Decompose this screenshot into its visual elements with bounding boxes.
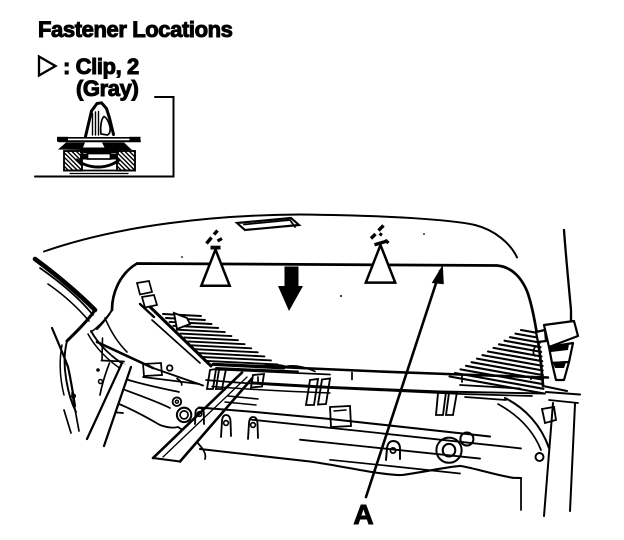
svg-text:Fastener Locations: Fastener Locations [38, 17, 233, 42]
svg-text:(Gray): (Gray) [76, 76, 138, 101]
svg-text:A: A [353, 499, 373, 530]
